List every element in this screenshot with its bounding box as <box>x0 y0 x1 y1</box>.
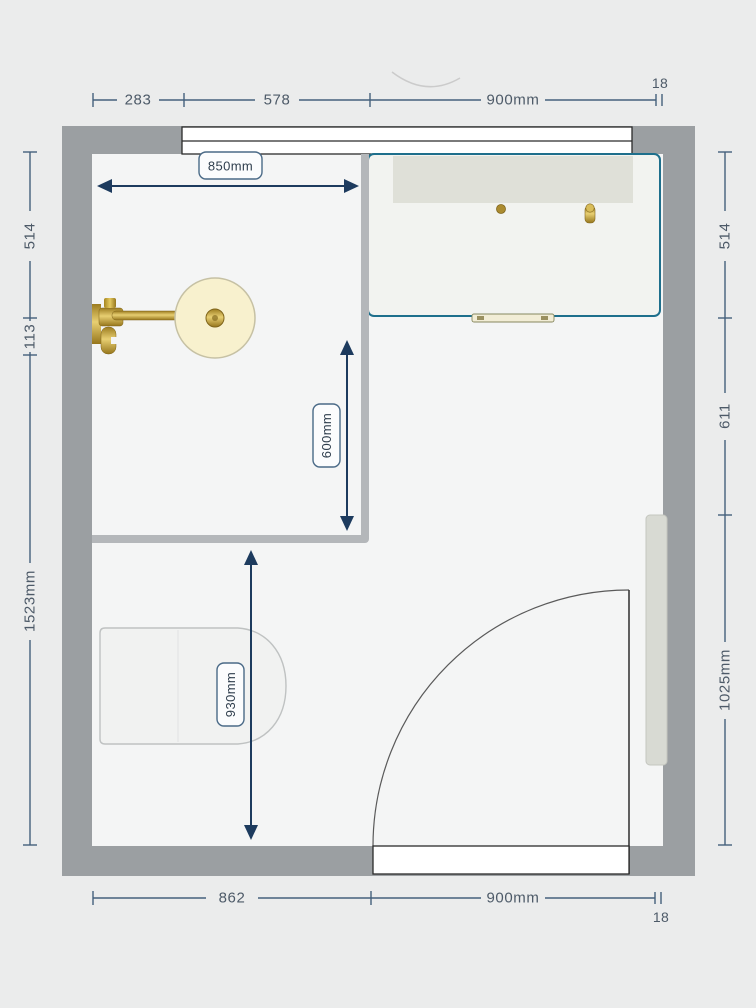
chip-shower-depth[interactable]: 600mm <box>313 404 340 467</box>
shower-head-center-dot <box>212 315 218 321</box>
window[interactable] <box>182 127 632 154</box>
dim-label-top-2: 578 <box>264 92 291 109</box>
dim-bottom: 862 900mm 18 <box>93 890 669 926</box>
shower-hook-notch <box>111 337 118 344</box>
radiator-body <box>646 515 667 765</box>
shower-mount-tab <box>104 298 116 308</box>
dim-label-right-2: 611 <box>717 403 734 429</box>
dim-label-left-2: 113 <box>22 324 39 350</box>
basin-edge-arc <box>392 72 460 87</box>
dim-label-top-wall: 18 <box>652 75 668 91</box>
vanity-handle <box>472 314 554 322</box>
dim-label-bottom-2: 900mm <box>486 890 539 907</box>
vanity-counter-band <box>393 156 633 203</box>
dim-left: 514 113 1523mm <box>22 152 39 845</box>
door-opening <box>373 846 629 874</box>
dim-top: 283 578 900mm 18 <box>93 75 668 109</box>
radiator[interactable] <box>646 515 667 765</box>
dim-right: 514 611 1025mm <box>717 152 734 845</box>
dim-label-left-3: 1523mm <box>22 570 39 632</box>
chip-label-600: 600mm <box>319 413 334 458</box>
chip-shower-width[interactable]: 850mm <box>199 152 262 179</box>
dim-label-top-1: 283 <box>125 92 152 109</box>
dim-label-bottom-wall: 18 <box>653 909 669 925</box>
chip-label-930: 930mm <box>223 672 238 717</box>
dim-label-right-1: 514 <box>717 223 734 250</box>
floor-plan-canvas[interactable]: 850mm 600mm 930mm 283 578 900mm 18 <box>0 0 756 1008</box>
chip-label-850: 850mm <box>208 159 253 174</box>
dim-label-bottom-1: 862 <box>219 890 246 907</box>
dim-label-right-3: 1025mm <box>717 649 734 711</box>
dim-label-left-1: 514 <box>22 223 39 250</box>
basin-tap-icon <box>585 204 595 223</box>
toilet-outline <box>100 628 286 744</box>
vanity-unit[interactable] <box>368 154 660 322</box>
dim-label-top-3: 900mm <box>486 92 539 109</box>
toilet[interactable] <box>100 628 286 744</box>
chip-toilet-clearance[interactable]: 930mm <box>217 663 244 726</box>
basin-waste-icon <box>497 205 506 214</box>
